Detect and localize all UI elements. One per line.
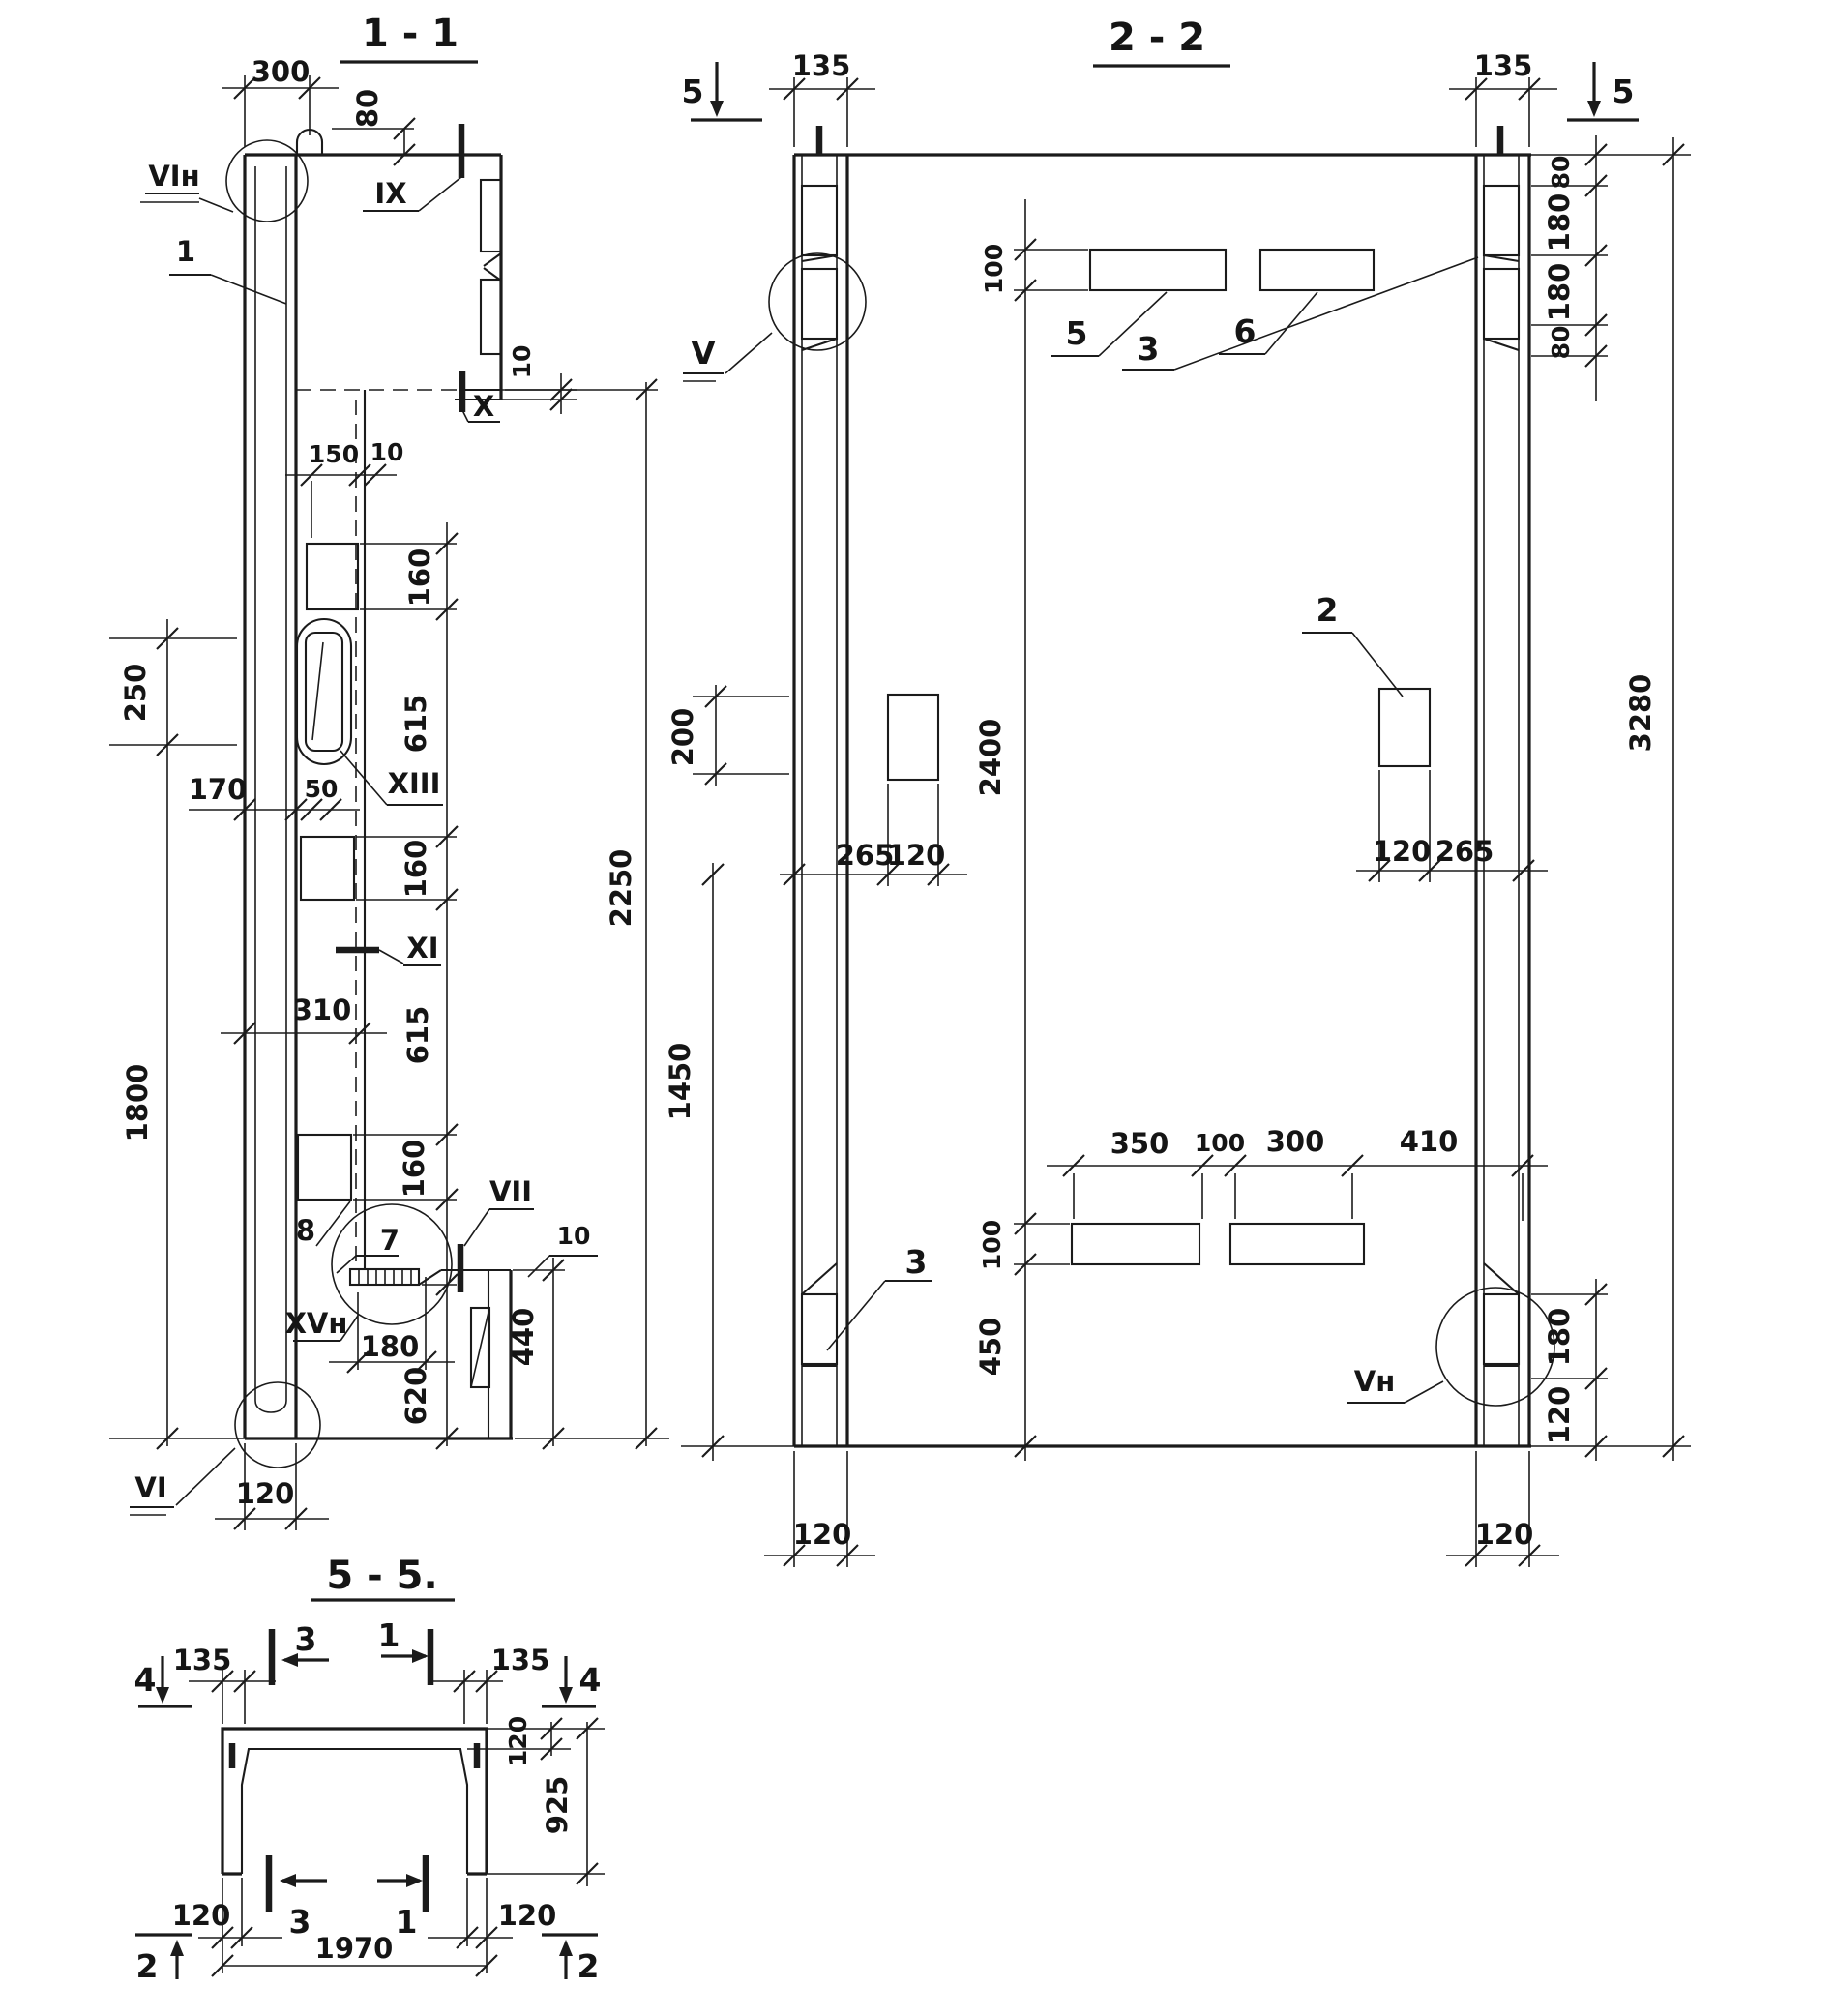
- callout-3: 3: [905, 1243, 928, 1281]
- dim-925: 925: [541, 1776, 574, 1835]
- dim-300: 300: [1266, 1125, 1325, 1158]
- dim-180: 180: [361, 1330, 420, 1363]
- dim-10: 10: [557, 1222, 591, 1250]
- dim-300: 300: [252, 55, 311, 88]
- dim-3280: 3280: [1624, 674, 1657, 753]
- section-mark-1: 1: [378, 1616, 400, 1654]
- section-title-5-5: 5 - 5.: [326, 1554, 437, 1598]
- embed-plate: [481, 280, 501, 354]
- dim-10: 10: [370, 438, 404, 466]
- dim-2250: 2250: [605, 849, 637, 928]
- dim-135: 135: [792, 49, 851, 82]
- dim-100: 100: [978, 1220, 1006, 1270]
- section-mark-3: 3: [295, 1620, 317, 1658]
- callout-1: 1: [176, 235, 195, 268]
- dim-180: 180: [1543, 263, 1576, 322]
- section-mark-3: 3: [289, 1903, 311, 1941]
- detail-circle-vn: [1436, 1288, 1554, 1406]
- anchor-bar: [888, 695, 938, 780]
- dim-120: 120: [887, 839, 946, 872]
- dim-265: 265: [836, 839, 895, 872]
- view-mark-4-left: 4: [134, 1661, 157, 1699]
- anchor-bar: [1072, 1224, 1199, 1264]
- section-1-1: 1 - 1 300 80 VIн IX 1 X 10 150 10 160 25…: [109, 12, 669, 1530]
- callout-7: 7: [380, 1224, 400, 1257]
- dim-200: 200: [666, 708, 699, 767]
- embed-plate: [481, 180, 501, 252]
- anchor-bar-6: [1260, 250, 1374, 290]
- section-title-1-1: 1 - 1: [362, 12, 459, 56]
- section-2-2: 2 - 2 5 135 135 5 80 180 180 80 3280 V 1…: [664, 15, 1691, 1567]
- dim-160: 160: [398, 1140, 430, 1199]
- dim-100: 100: [1195, 1129, 1245, 1157]
- callout-5: 5: [1066, 314, 1088, 352]
- drawing-sheet: 1 - 1 300 80 VIн IX 1 X 10 150 10 160 25…: [0, 0, 1835, 2016]
- concrete-panel-drawing: 1 - 1 300 80 VIн IX 1 X 10 150 10 160 25…: [0, 0, 1835, 2016]
- dim-100: 100: [980, 244, 1008, 294]
- section-2-2-geometry: [681, 66, 1691, 1446]
- section-title-2-2: 2 - 2: [1109, 15, 1205, 60]
- dim-120: 120: [172, 1899, 231, 1932]
- dim-160: 160: [400, 840, 432, 899]
- dim-120: 120: [1543, 1386, 1576, 1445]
- mark-x: X: [473, 390, 494, 423]
- dim-135: 135: [1474, 49, 1533, 82]
- anchor-bar-2: [1379, 689, 1430, 766]
- mark-vn: Vн: [1354, 1365, 1395, 1398]
- mark-vin: VIн: [148, 160, 199, 193]
- dim-450: 450: [974, 1318, 1007, 1377]
- dim-135: 135: [491, 1644, 550, 1676]
- anchor-bar: [301, 837, 354, 900]
- dim-160: 160: [403, 548, 436, 608]
- section-mark-1: 1: [396, 1903, 418, 1941]
- dim-310: 310: [293, 993, 352, 1026]
- view-mark-2-right: 2: [577, 1947, 600, 1985]
- dim-180: 180: [1543, 193, 1576, 252]
- dim-120: 120: [236, 1477, 295, 1510]
- dim-120: 120: [1475, 1518, 1534, 1551]
- mark-vi: VI: [134, 1471, 166, 1504]
- dim-410: 410: [1400, 1125, 1459, 1158]
- view-mark-5-left: 5: [682, 73, 704, 110]
- dim-120: 120: [498, 1899, 557, 1932]
- dim-350: 350: [1110, 1127, 1169, 1160]
- section-2-2-dim-lines: [683, 62, 1684, 1567]
- dim-265: 265: [1435, 835, 1495, 868]
- anchor-bar-5: [1090, 250, 1226, 290]
- dim-170: 170: [189, 773, 248, 806]
- callout-3: 3: [1138, 330, 1160, 368]
- mark-ix: IX: [374, 177, 406, 210]
- dim-615: 615: [400, 695, 432, 754]
- section-5-5-labels: 5 - 5. 4 135 3 1 135 4 120 925 120 3 1 1…: [134, 1554, 602, 1985]
- callout-6: 6: [1234, 312, 1257, 350]
- detail-circle-vi: [235, 1382, 320, 1468]
- view-mark-4-right: 4: [579, 1661, 602, 1699]
- anchor-bar: [307, 544, 358, 609]
- dim-180: 180: [1543, 1308, 1576, 1367]
- dim-80: 80: [1547, 156, 1575, 190]
- dim-1970: 1970: [315, 1932, 394, 1965]
- dim-440: 440: [507, 1308, 540, 1367]
- section-5-5: 5 - 5. 4 135 3 1 135 4 120 925 120 3 1 1…: [134, 1554, 605, 1985]
- dim-615: 615: [401, 1006, 434, 1065]
- mark-xi: XI: [406, 932, 438, 964]
- dim-10: 10: [508, 345, 536, 379]
- dim-120: 120: [1373, 835, 1432, 868]
- dim-80: 80: [1547, 326, 1575, 360]
- dim-120: 120: [504, 1716, 532, 1766]
- section-5-5-geometry: [222, 1600, 487, 1874]
- dim-1450: 1450: [664, 1043, 696, 1121]
- mark-xvn: XVн: [285, 1307, 348, 1340]
- dim-1800: 1800: [121, 1064, 154, 1142]
- anchor-bar: [1230, 1224, 1364, 1264]
- mark-v: V: [691, 334, 716, 371]
- dim-2400: 2400: [974, 719, 1007, 797]
- callout-8: 8: [296, 1214, 315, 1247]
- section-1-1-geometry: [226, 62, 513, 1468]
- section-2-2-labels: 2 - 2 5 135 135 5 80 180 180 80 3280 V 1…: [664, 15, 1657, 1551]
- detail-circle-7: [332, 1204, 452, 1324]
- dim-250: 250: [119, 664, 152, 723]
- dim-50: 50: [305, 775, 339, 803]
- dim-620: 620: [400, 1367, 432, 1426]
- dim-150: 150: [309, 440, 359, 468]
- callout-2: 2: [1317, 591, 1339, 629]
- dim-80: 80: [351, 89, 384, 128]
- dim-135: 135: [173, 1644, 232, 1676]
- view-mark-5-right: 5: [1613, 73, 1635, 110]
- view-mark-2-left: 2: [136, 1947, 159, 1985]
- mark-vii: VII: [489, 1175, 532, 1208]
- dim-120: 120: [793, 1518, 852, 1551]
- anchor-bar: [298, 1135, 351, 1200]
- mark-xiii: XIII: [388, 767, 441, 800]
